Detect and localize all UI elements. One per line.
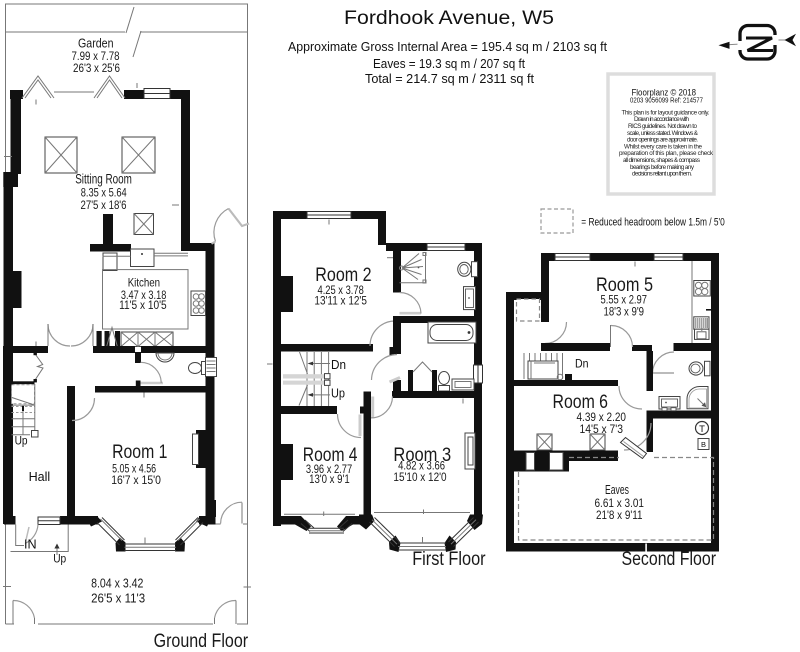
svg-text:0203 9056099 Ref: 214577: 0203 9056099 Ref: 214577 [630,96,703,105]
svg-text:Sitting Room: Sitting Room [75,171,132,186]
svg-text:Dn: Dn [575,357,589,371]
svg-text:27'5 x 18'6: 27'5 x 18'6 [81,198,127,212]
svg-text:IN: IN [24,538,37,552]
svg-text:Total = 214.7 sq m / 2311 sq f: Total = 214.7 sq m / 2311 sq ft [365,71,534,86]
svg-text:13'11 x 12'5: 13'11 x 12'5 [314,294,367,308]
svg-text:18'3 x 9'9: 18'3 x 9'9 [604,304,645,318]
svg-text:Approximate Gross Internal Are: Approximate Gross Internal Area = 195.4 … [288,39,607,54]
svg-text:B: B [701,440,706,449]
svg-text:13'0 x 9'1: 13'0 x 9'1 [309,472,350,486]
svg-text:decisions reliant upon them.: decisions reliant upon them. [632,171,692,178]
svg-text:Hall: Hall [29,469,51,484]
svg-text:15'10 x 12'0: 15'10 x 12'0 [393,472,446,484]
svg-text:Second Floor: Second Floor [622,548,717,570]
svg-text:Kitchen: Kitchen [128,276,160,290]
svg-text:Up: Up [15,434,28,448]
svg-text:26'3 x 25'6: 26'3 x 25'6 [73,61,120,75]
svg-text:26'5 x 11'3: 26'5 x 11'3 [91,591,145,605]
svg-text:Ground Floor: Ground Floor [154,630,249,652]
svg-text:Fordhook Avenue, W5: Fordhook Avenue, W5 [344,7,554,29]
svg-text:First Floor: First Floor [412,548,486,570]
svg-text:T: T [699,424,705,435]
svg-text:11'5 x 10'5: 11'5 x 10'5 [119,300,167,312]
svg-text:Room 1: Room 1 [112,441,167,463]
svg-text:= Reduced headroom below 1.5m: = Reduced headroom below 1.5m / 5'0 [581,216,725,228]
svg-text:Up: Up [331,387,345,401]
svg-text:Eaves = 19.3 sq m / 207 sq ft: Eaves = 19.3 sq m / 207 sq ft [373,56,525,71]
svg-text:8.04 x 3.42: 8.04 x 3.42 [91,577,143,591]
svg-text:Dn: Dn [331,358,346,372]
svg-text:Up: Up [53,552,66,566]
svg-text:21'8 x 9'11: 21'8 x 9'11 [596,508,643,522]
svg-text:16'7 x 15'0: 16'7 x 15'0 [111,473,161,487]
svg-text:4.82 x 3.66: 4.82 x 3.66 [398,460,445,472]
